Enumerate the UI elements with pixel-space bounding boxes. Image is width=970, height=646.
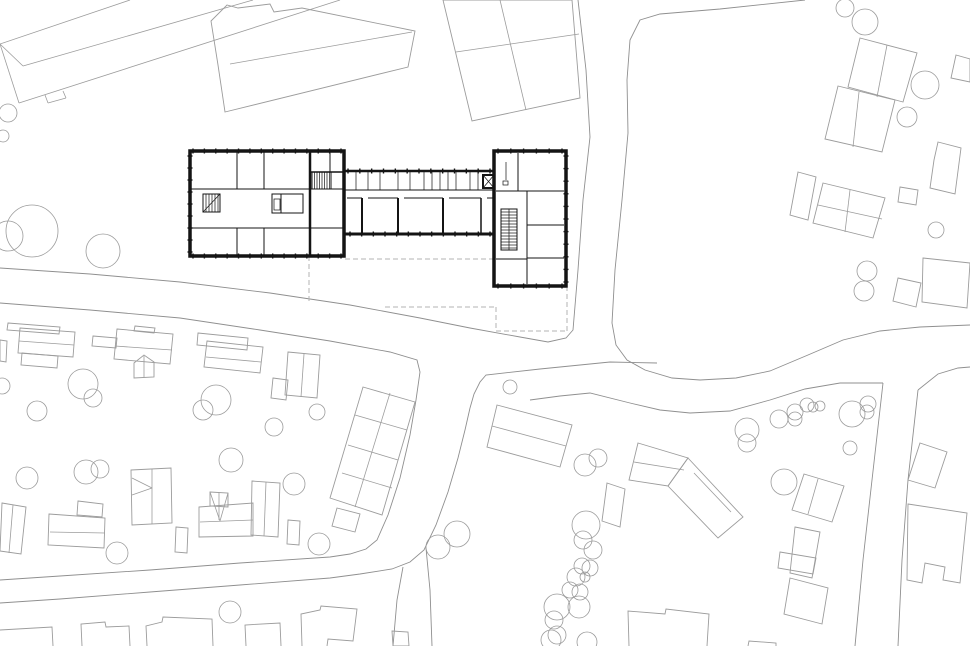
context-building xyxy=(792,474,844,522)
context-building xyxy=(92,336,117,348)
context-building xyxy=(7,323,60,334)
tree xyxy=(800,398,814,412)
context-building xyxy=(0,340,7,362)
context-building xyxy=(0,627,53,646)
road-edge xyxy=(0,0,590,342)
tree xyxy=(444,521,470,547)
road-edge xyxy=(470,362,657,408)
context-building-detail xyxy=(206,357,261,362)
road-edge xyxy=(426,548,432,646)
context-building xyxy=(790,527,820,578)
context-building xyxy=(628,609,709,646)
tree xyxy=(854,281,874,301)
road-edge xyxy=(0,408,470,603)
road-edge xyxy=(855,383,883,646)
tree xyxy=(86,234,120,268)
tree xyxy=(426,535,450,559)
tree xyxy=(788,412,802,426)
tree xyxy=(74,460,98,484)
context-building xyxy=(197,333,248,350)
tree xyxy=(219,601,241,623)
context-building xyxy=(602,483,625,527)
context-building-detail xyxy=(264,482,266,536)
context-building xyxy=(21,353,58,368)
tree xyxy=(193,400,213,420)
tree xyxy=(771,469,797,495)
context-building xyxy=(813,183,885,238)
context-building-detail xyxy=(301,354,304,397)
context-building xyxy=(784,578,828,624)
context-building xyxy=(629,443,688,486)
context-building-detail xyxy=(19,0,340,103)
context-building-detail xyxy=(808,479,818,514)
context-building xyxy=(0,503,26,554)
context-building xyxy=(778,552,816,574)
wall-rect xyxy=(503,181,508,185)
tree xyxy=(584,541,602,559)
tree xyxy=(84,389,102,407)
context-building-detail xyxy=(19,341,74,345)
road-edge xyxy=(393,567,403,646)
context-building-detail xyxy=(877,45,887,97)
tree xyxy=(568,596,590,618)
tree xyxy=(770,410,788,428)
context-building-detail xyxy=(9,505,13,553)
context-building-detail xyxy=(132,488,152,495)
context-building xyxy=(748,641,776,646)
tree xyxy=(16,467,38,489)
tree xyxy=(852,9,878,35)
tree xyxy=(283,473,305,495)
tree xyxy=(843,441,857,455)
context-building xyxy=(245,623,281,646)
tree xyxy=(219,448,243,472)
context-buildings-layer xyxy=(0,0,970,646)
context-building xyxy=(204,341,263,373)
context-building xyxy=(175,527,188,553)
context-building-detail xyxy=(230,32,412,64)
tree xyxy=(897,107,917,127)
tree xyxy=(574,531,592,549)
context-building xyxy=(443,0,580,121)
context-building xyxy=(668,458,743,538)
context-building xyxy=(81,622,130,646)
context-building xyxy=(907,504,967,583)
wall-line xyxy=(203,194,220,212)
tree xyxy=(309,404,325,420)
tree xyxy=(928,222,944,238)
tree xyxy=(808,402,818,412)
context-building xyxy=(77,501,103,517)
context-building-detail xyxy=(342,473,392,488)
tree xyxy=(911,71,939,99)
tree xyxy=(308,533,330,555)
context-building xyxy=(301,606,357,646)
road-edge xyxy=(918,367,970,390)
context-building-detail xyxy=(456,34,579,52)
site-plan-svg xyxy=(0,0,970,646)
context-building xyxy=(825,86,895,152)
context-building-detail xyxy=(634,462,684,470)
tree xyxy=(68,369,98,399)
tree xyxy=(738,434,756,452)
context-building xyxy=(922,258,970,308)
roads-layer xyxy=(0,0,970,646)
context-building xyxy=(908,443,947,488)
context-building-detail xyxy=(492,426,566,446)
context-building-detail xyxy=(355,393,390,507)
context-building-detail xyxy=(132,478,152,488)
dashed-outline-layer xyxy=(309,256,567,331)
tree xyxy=(106,542,128,564)
context-building xyxy=(287,520,300,545)
tree xyxy=(815,401,825,411)
tree xyxy=(589,449,607,467)
context-building xyxy=(951,55,970,82)
context-building-detail xyxy=(355,415,407,430)
school-building-plan xyxy=(188,149,569,289)
tree xyxy=(544,594,570,620)
context-building-detail xyxy=(200,520,253,522)
context-building-detail xyxy=(500,0,526,110)
context-building-detail xyxy=(45,95,48,103)
context-building-detail xyxy=(48,98,66,103)
context-building-detail xyxy=(50,532,105,533)
context-building xyxy=(332,508,360,532)
road-edge xyxy=(530,383,883,413)
context-building-detail xyxy=(0,0,130,44)
wall-rect xyxy=(494,151,566,286)
wall-rect xyxy=(190,151,344,256)
tree xyxy=(265,418,283,436)
context-building-detail xyxy=(115,346,172,350)
context-building xyxy=(211,4,415,112)
tree xyxy=(577,632,597,646)
tree xyxy=(6,205,58,257)
tree xyxy=(572,584,588,600)
context-building xyxy=(893,278,921,307)
context-building xyxy=(18,328,75,357)
context-building xyxy=(790,172,816,220)
context-building xyxy=(930,142,961,194)
tree xyxy=(839,401,865,427)
trees-layer xyxy=(0,0,944,646)
tree xyxy=(562,582,578,598)
wall-rect xyxy=(274,199,280,210)
tree xyxy=(836,0,854,17)
tree xyxy=(91,460,109,478)
architectural-site-plan xyxy=(0,0,970,646)
tree xyxy=(27,401,47,421)
tree xyxy=(503,380,517,394)
context-building-detail xyxy=(694,473,731,512)
context-building-detail xyxy=(23,0,253,66)
tree xyxy=(735,418,759,442)
context-building-detail xyxy=(63,91,66,98)
context-building xyxy=(48,514,105,548)
context-building-detail xyxy=(853,92,859,147)
context-building xyxy=(898,187,918,205)
tree xyxy=(857,261,877,281)
context-building xyxy=(146,617,213,646)
tree xyxy=(0,130,9,142)
context-building xyxy=(131,468,172,525)
tree xyxy=(572,511,600,539)
tree xyxy=(0,104,17,122)
tree xyxy=(0,378,10,394)
context-building-detail xyxy=(818,205,882,219)
